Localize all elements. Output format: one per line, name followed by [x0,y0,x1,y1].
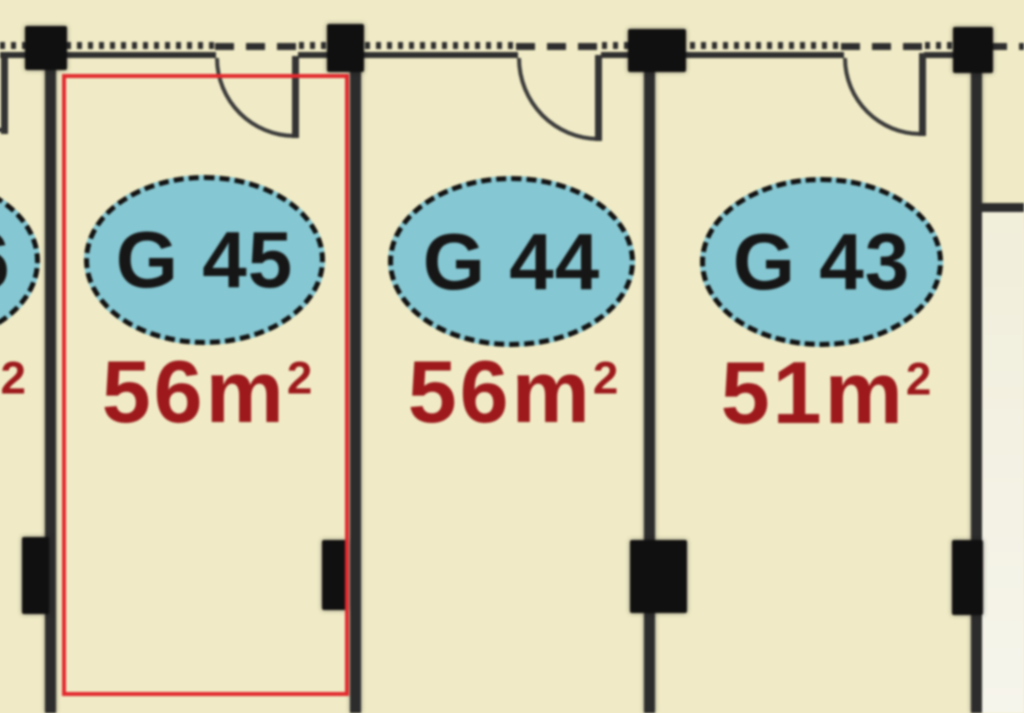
area-exponent: 2 [593,353,618,404]
door-leaf-g44 [595,55,602,141]
door-opening-dash [516,43,599,50]
wall-g45-g44 [350,54,361,713]
column [22,537,49,614]
unit-label-g44: G 44 [423,222,600,302]
door-leaf-g43 [919,53,926,136]
adjacent-room-area [982,212,1024,713]
area-exponent: 2 [1,353,26,404]
unit-area-g44: 56m2 [408,348,619,436]
unit-hotspot-g44[interactable]: G 44 [388,176,635,347]
area-exponent: 2 [906,354,931,405]
right-branch-wall [975,203,1024,212]
unit-label-g43: G 43 [733,222,910,302]
door-arc-g43 [843,58,921,136]
column [952,540,983,615]
column [628,29,686,72]
unit-hotspot-g46[interactable]: G 46 [0,176,40,346]
area-value: 56 [408,342,512,441]
wall-left-of-g45 [45,54,56,713]
door-opening-dash [215,43,298,50]
door-opening-dash [841,43,922,50]
column [953,27,993,73]
column [327,24,364,72]
wall-g44-g43 [644,54,655,713]
door-leaf-left-partial [1,58,8,134]
column [25,26,67,70]
selected-unit-highlight-rect [62,74,349,696]
unit-area-g43: 51m2 [721,349,932,437]
window-dash [988,43,1024,50]
column [630,540,687,613]
unit-hotspot-g43[interactable]: G 43 [700,177,943,347]
unit-area-g46: 2 [0,348,26,436]
area-unit: m [512,342,593,441]
wall-hatch-ticks [925,42,953,49]
unit-label-g46: G 46 [0,221,11,301]
floor-plan: G 46 2 G 45 56m2 G 44 56m2 G 43 51m2 [0,0,1024,713]
top-wall-segment [924,52,956,58]
area-value: 51 [721,343,825,442]
plan-canvas: G 46 2 G 45 56m2 G 44 56m2 G 43 51m2 [0,0,1024,713]
area-unit: m [825,343,906,442]
door-arc-g44 [517,58,599,141]
